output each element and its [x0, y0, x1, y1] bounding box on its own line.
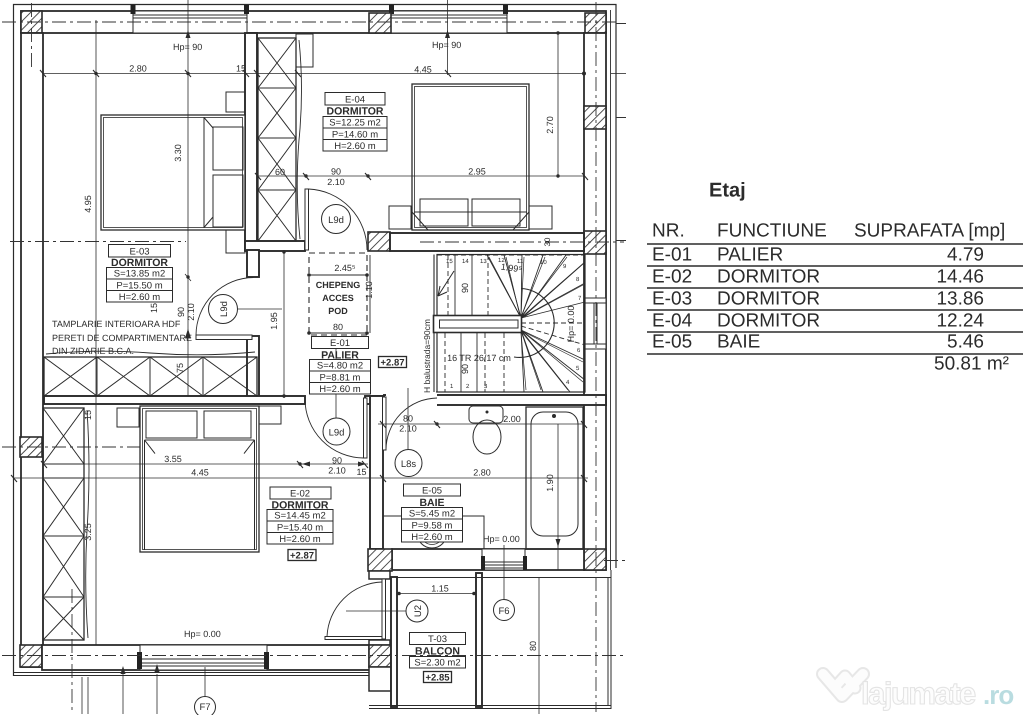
- svg-text:15: 15: [149, 303, 159, 313]
- svg-text:+2.87: +2.87: [380, 358, 404, 369]
- svg-text:S=4.80 m2: S=4.80 m2: [317, 361, 363, 372]
- svg-text:P=15.50 m: P=15.50 m: [116, 280, 162, 291]
- svg-text:1.95: 1.95: [269, 312, 279, 330]
- svg-text:1.90: 1.90: [545, 474, 555, 492]
- svg-text:L9d: L9d: [328, 215, 344, 226]
- svg-text:S=14.45 m2: S=14.45 m2: [274, 511, 326, 522]
- svg-text:Hp= 0.00: Hp= 0.00: [483, 534, 520, 544]
- svg-text:H=2.60 m: H=2.60 m: [411, 532, 453, 543]
- svg-text:+2.85: +2.85: [425, 673, 450, 684]
- svg-text:H=2.60 m: H=2.60 m: [279, 534, 321, 545]
- svg-text:Hp= 0.00: Hp= 0.00: [184, 629, 221, 639]
- svg-text:90: 90: [460, 283, 470, 293]
- svg-text:2.10: 2.10: [186, 303, 196, 321]
- svg-text:2.45⁵: 2.45⁵: [334, 263, 356, 273]
- svg-text:5.46: 5.46: [947, 332, 984, 353]
- svg-text:BAIE: BAIE: [717, 332, 760, 353]
- svg-text:80: 80: [333, 322, 343, 332]
- svg-text:60: 60: [275, 167, 285, 177]
- svg-text:3.25: 3.25: [83, 523, 93, 541]
- svg-text:2.80: 2.80: [129, 64, 147, 74]
- svg-text:E-01: E-01: [330, 338, 350, 349]
- svg-text:Hp= 0.00: Hp= 0.00: [566, 306, 576, 343]
- svg-text:E-03: E-03: [129, 247, 149, 258]
- svg-text:+2.87: +2.87: [290, 551, 314, 562]
- svg-text:Hp= 90: Hp= 90: [173, 42, 202, 52]
- svg-text:DORMITOR: DORMITOR: [717, 311, 820, 332]
- svg-text:15: 15: [356, 467, 366, 477]
- svg-text:E-01: E-01: [652, 245, 692, 266]
- svg-text:U2: U2: [413, 605, 424, 617]
- svg-text:P=9.58 m: P=9.58 m: [412, 520, 453, 531]
- svg-text:S=5.45 m2: S=5.45 m2: [409, 509, 455, 520]
- svg-text:DORMITOR: DORMITOR: [717, 289, 820, 310]
- svg-text:13: 13: [480, 258, 487, 265]
- svg-text:14: 14: [462, 258, 469, 265]
- svg-text:POD: POD: [328, 306, 348, 316]
- svg-text:DIN ZIDARIE B.C.A.: DIN ZIDARIE B.C.A.: [52, 346, 134, 356]
- svg-text:P=8.81 m: P=8.81 m: [320, 372, 361, 383]
- svg-text:E-03: E-03: [652, 289, 692, 310]
- svg-text:90: 90: [332, 456, 342, 466]
- svg-text:BALCON: BALCON: [415, 646, 460, 658]
- svg-text:P=15.40 m: P=15.40 m: [277, 522, 323, 533]
- svg-text:H=2.60 m: H=2.60 m: [334, 141, 376, 152]
- svg-text:80: 80: [403, 414, 413, 424]
- svg-text:E-05: E-05: [422, 486, 442, 497]
- svg-text:4.95: 4.95: [83, 195, 93, 213]
- svg-text:2.95: 2.95: [468, 167, 486, 177]
- svg-text:10: 10: [540, 259, 547, 266]
- svg-text:H=2.60 m: H=2.60 m: [319, 384, 361, 395]
- svg-text:L9d: L9d: [329, 428, 345, 439]
- svg-text:E-05: E-05: [652, 332, 692, 353]
- svg-text:T-03: T-03: [428, 634, 447, 645]
- svg-text:30: 30: [543, 237, 552, 246]
- svg-text:50.81 m²: 50.81 m²: [934, 354, 1009, 375]
- svg-text:3.30: 3.30: [173, 144, 183, 162]
- svg-text:90: 90: [331, 167, 341, 177]
- svg-text:DORMITOR: DORMITOR: [327, 106, 384, 118]
- svg-text:lajumate: lajumate: [861, 676, 976, 711]
- svg-text:S=12.25 m2: S=12.25 m2: [329, 118, 381, 129]
- svg-text:1.10: 1.10: [364, 281, 374, 299]
- svg-text:E-02: E-02: [652, 267, 692, 288]
- svg-text:4.45: 4.45: [191, 468, 209, 478]
- svg-text:14.46: 14.46: [936, 267, 984, 288]
- svg-text:NR.: NR.: [652, 221, 685, 242]
- svg-text:H=2.60 m: H=2.60 m: [119, 292, 161, 303]
- svg-text:S=2.30 m2: S=2.30 m2: [414, 658, 460, 669]
- svg-text:F7: F7: [199, 702, 210, 713]
- svg-text:CHEPENG: CHEPENG: [316, 280, 361, 290]
- svg-text:2.10: 2.10: [327, 177, 345, 187]
- svg-text:Hp= 90: Hp= 90: [432, 40, 461, 50]
- svg-text:2.80: 2.80: [473, 468, 491, 478]
- svg-text:E-04: E-04: [652, 311, 693, 332]
- svg-text:.ro: .ro: [983, 680, 1013, 710]
- svg-text:80: 80: [528, 641, 538, 651]
- svg-text:1.15: 1.15: [431, 584, 449, 594]
- svg-text:16 TR 26/17 cm: 16 TR 26/17 cm: [447, 353, 511, 363]
- svg-text:FUNCTIUNE: FUNCTIUNE: [717, 221, 827, 242]
- svg-text:4.45: 4.45: [414, 65, 432, 75]
- svg-text:2.10: 2.10: [399, 424, 417, 434]
- svg-text:75: 75: [175, 363, 185, 373]
- svg-text:S=13.85 m2: S=13.85 m2: [114, 269, 166, 280]
- svg-text:2.00: 2.00: [503, 414, 521, 424]
- svg-text:13.86: 13.86: [936, 289, 984, 310]
- svg-text:2.10: 2.10: [328, 466, 346, 476]
- svg-text:15: 15: [446, 258, 453, 265]
- svg-text:90: 90: [176, 307, 186, 317]
- svg-text:SUPRAFATA [mp]: SUPRAFATA [mp]: [854, 221, 1005, 242]
- svg-text:15: 15: [83, 410, 93, 420]
- svg-text:DORMITOR: DORMITOR: [717, 267, 820, 288]
- svg-text:PALIER: PALIER: [717, 245, 783, 266]
- svg-text:Etaj: Etaj: [709, 180, 746, 202]
- svg-text:E-04: E-04: [345, 95, 365, 106]
- svg-text:PERETI DE COMPARTIMENTARE: PERETI DE COMPARTIMENTARE: [52, 333, 192, 343]
- svg-text:P=14.60 m: P=14.60 m: [332, 129, 378, 140]
- svg-text:F6: F6: [498, 606, 509, 617]
- svg-text:90: 90: [460, 364, 470, 374]
- svg-text:L9d: L9d: [219, 301, 230, 317]
- svg-text:E-02: E-02: [290, 489, 310, 500]
- svg-text:TAMPLARIE INTERIOARA HDF: TAMPLARIE INTERIOARA HDF: [52, 319, 181, 329]
- svg-text:4.79: 4.79: [947, 245, 984, 266]
- svg-text:ACCES: ACCES: [322, 293, 354, 303]
- svg-text:12.24: 12.24: [936, 311, 984, 332]
- svg-text:H balustrada=90cm: H balustrada=90cm: [422, 319, 432, 393]
- svg-text:2.70: 2.70: [545, 116, 555, 134]
- svg-text:15: 15: [236, 64, 246, 74]
- svg-text:3.55: 3.55: [164, 454, 182, 464]
- svg-text:L8s: L8s: [401, 459, 417, 470]
